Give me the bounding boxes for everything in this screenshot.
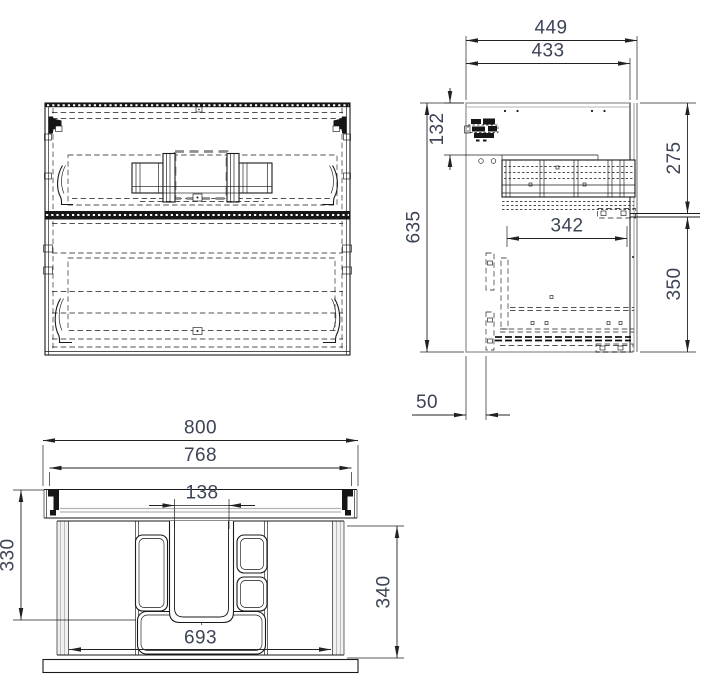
dim-inner-width-label: 693 — [184, 628, 217, 649]
technical-drawing: 449 433 132 635 275 342 — [0, 0, 706, 690]
front-view — [44, 103, 352, 355]
dim-top-offset-label: 132 — [427, 113, 448, 146]
dim-lower-drawer-zone-label: 350 — [664, 268, 685, 301]
dim-inner-depth: 340 — [347, 526, 404, 658]
organizer-u-channel — [170, 521, 234, 623]
dim-runner-length-label: 342 — [551, 216, 584, 237]
dim-inner-width: 693 — [69, 628, 331, 650]
dim-back-clearance-label: 50 — [416, 392, 438, 413]
dim-overall-depth-label: 449 — [535, 18, 568, 39]
dim-carcass-width: 768 — [50, 445, 352, 486]
organizer-left-compartment — [136, 535, 168, 611]
plan-left-wall — [48, 490, 69, 655]
side-view-dimensions: 449 433 132 635 275 342 — [404, 18, 697, 421]
dim-carcass-width-label: 768 — [184, 445, 217, 466]
plan-right-wall — [332, 490, 353, 655]
dim-carcass-depth-label: 433 — [532, 41, 565, 62]
dim-back-clearance: 50 — [412, 356, 510, 420]
dim-depth-to-channel-label: 330 — [0, 539, 19, 572]
dim-carcass-depth: 433 — [466, 41, 630, 101]
dim-upper-drawer-zone: 275 — [640, 103, 696, 214]
technical-drawing-page: 449 433 132 635 275 342 — [0, 0, 706, 690]
dim-overall-height-label: 635 — [404, 211, 425, 244]
dim-inner-depth-label: 340 — [374, 576, 395, 609]
side-panel-outline — [466, 103, 630, 352]
dim-lower-drawer-zone: 350 — [640, 217, 696, 352]
dim-overall-width-label: 800 — [184, 418, 217, 439]
runner-protrusion — [630, 214, 700, 218]
dim-upper-drawer-zone-label: 275 — [664, 142, 685, 175]
plan-back-panel — [43, 660, 358, 673]
dim-channel-width-label: 138 — [186, 483, 219, 504]
front-cabinet-outline — [45, 103, 350, 355]
